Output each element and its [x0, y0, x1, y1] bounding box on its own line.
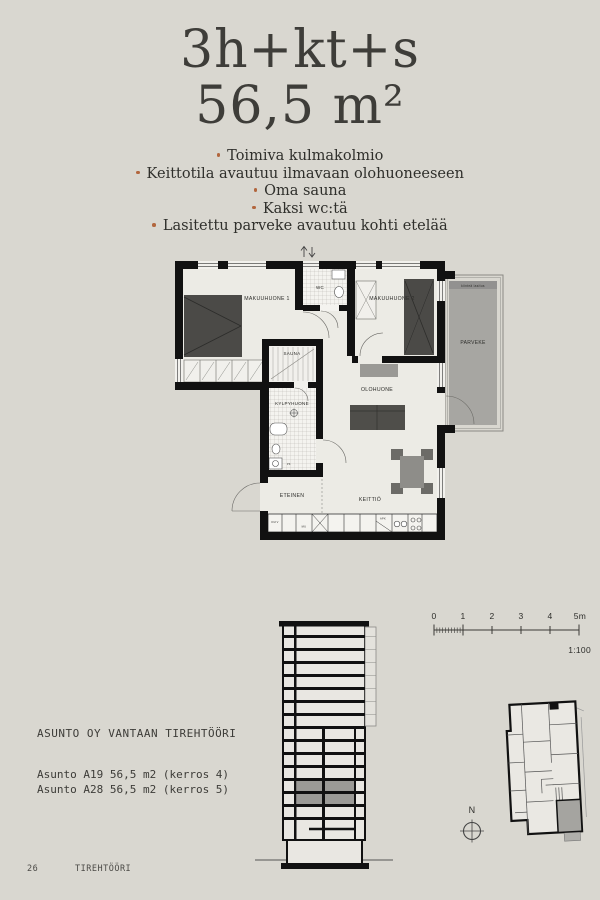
- page-number: 26: [27, 864, 38, 874]
- features-list: Toimiva kulmakolmio Keittotila avautuu i…: [0, 148, 600, 236]
- washbasin-icon: [270, 423, 287, 435]
- appliance-label-washer: PK: [287, 463, 291, 466]
- title-block: 3h+kt+s 56,5 m²: [0, 22, 600, 134]
- appliance-label-dryer: KUIV: [271, 520, 278, 524]
- appliance-label-dishwasher: APK: [380, 517, 386, 521]
- site-plan-drawing: [497, 693, 597, 875]
- bullet-dot-icon: [254, 188, 258, 192]
- room-label-bedroom2: MAKUUHUONE 2: [369, 296, 414, 302]
- project-name: ASUNTO OY VANTAAN TIREHTÖÖRI: [37, 727, 236, 740]
- stair-core-marker: [549, 702, 558, 709]
- scale-tick-label: 0: [431, 611, 436, 621]
- scale-tick-label: 5m: [574, 611, 586, 621]
- feature-item: Keittotila avautuu ilmavaan olohuoneesee…: [0, 166, 600, 184]
- apartment-type-heading: 3h+kt+s: [0, 22, 600, 78]
- scale-bar: 0 1 2 3 4 5m 1:100: [428, 606, 596, 660]
- feature-item: Toimiva kulmakolmio: [0, 148, 600, 166]
- feature-text: Kaksi wc:tä: [263, 201, 348, 217]
- project-info-block: ASUNTO OY VANTAAN TIREHTÖÖRI Asunto A19 …: [37, 727, 236, 797]
- wardrobe-icon: [184, 360, 264, 382]
- bullet-dot-icon: [217, 153, 221, 157]
- bullet-dot-icon: [136, 171, 140, 175]
- highlighted-floor: [297, 781, 354, 791]
- floor-plan-drawing: kiinteä lasitus PARVEKE: [170, 243, 510, 553]
- bullet-dot-icon: [252, 206, 256, 210]
- feature-item: Kaksi wc:tä: [0, 201, 600, 219]
- balcony-stack: [365, 627, 376, 726]
- room-label-sauna: SAUNA: [283, 351, 300, 356]
- glazing-note: kiinteä lasitus: [461, 284, 485, 288]
- highlighted-floor: [297, 794, 354, 804]
- apartment-location-highlight: [556, 799, 582, 832]
- kitchen-counter: [268, 514, 437, 532]
- feature-text: Lasitettu parveke avautuu kohti etelää: [163, 218, 448, 234]
- toilet-icon: [335, 287, 344, 298]
- apartment-area-heading: 56,5 m²: [0, 78, 600, 134]
- balcony: kiinteä lasitus PARVEKE: [445, 271, 503, 433]
- feature-text: Keittotila avautuu ilmavaan olohuoneesee…: [147, 166, 464, 182]
- appliance-label-microwave: MU: [302, 525, 307, 529]
- wc-room: [303, 269, 347, 305]
- room-label-bathroom: KYLPYHUONE: [275, 401, 309, 406]
- room-label-living: OLOHUONE: [361, 387, 393, 393]
- scale-tick-label: 3: [518, 611, 523, 621]
- scale-ratio: 1:100: [568, 645, 591, 655]
- entry-arrows-icon: [301, 247, 315, 258]
- compass-north-label: N: [469, 805, 476, 815]
- building-section-drawing: [253, 613, 395, 878]
- sink-icon: [394, 521, 400, 527]
- base-block: [287, 840, 362, 865]
- sofa-icon: [350, 405, 405, 430]
- apartment-line: Asunto A28 56,5 m2 (kerros 5): [37, 782, 236, 797]
- brochure-page: 3h+kt+s 56,5 m² Toimiva kulmakolmio Keit…: [0, 0, 600, 900]
- room-label-wc: WC: [316, 285, 325, 290]
- room-label-balcony: PARVEKE: [460, 340, 486, 346]
- bullet-dot-icon: [152, 223, 156, 227]
- bed-icon: [404, 279, 434, 355]
- compass-icon: N: [452, 800, 496, 848]
- footer-project-name: TIREHTÖÖRI: [75, 864, 131, 874]
- room-label-hall: ETEINEN: [280, 493, 305, 499]
- scale-tick-label: 4: [547, 611, 552, 621]
- room-label-bedroom1: MAKUUHUONE 1: [244, 296, 289, 302]
- feature-item: Oma sauna: [0, 183, 600, 201]
- toilet-icon: [272, 444, 280, 454]
- scale-tick-label: 1: [460, 611, 465, 621]
- feature-text: Toimiva kulmakolmio: [227, 148, 383, 164]
- scale-tick-label: 2: [489, 611, 494, 621]
- bed-icon: [184, 295, 242, 357]
- washing-machine-icon: [269, 458, 282, 469]
- sink-icon: [332, 270, 345, 279]
- sideboard-icon: [360, 364, 398, 377]
- apartment-line: Asunto A19 56,5 m2 (kerros 4): [37, 767, 236, 782]
- feature-text: Oma sauna: [264, 183, 346, 199]
- feature-item: Lasitettu parveke avautuu kohti etelää: [0, 218, 600, 236]
- room-label-kitchen: KEITTIÖ: [359, 496, 381, 503]
